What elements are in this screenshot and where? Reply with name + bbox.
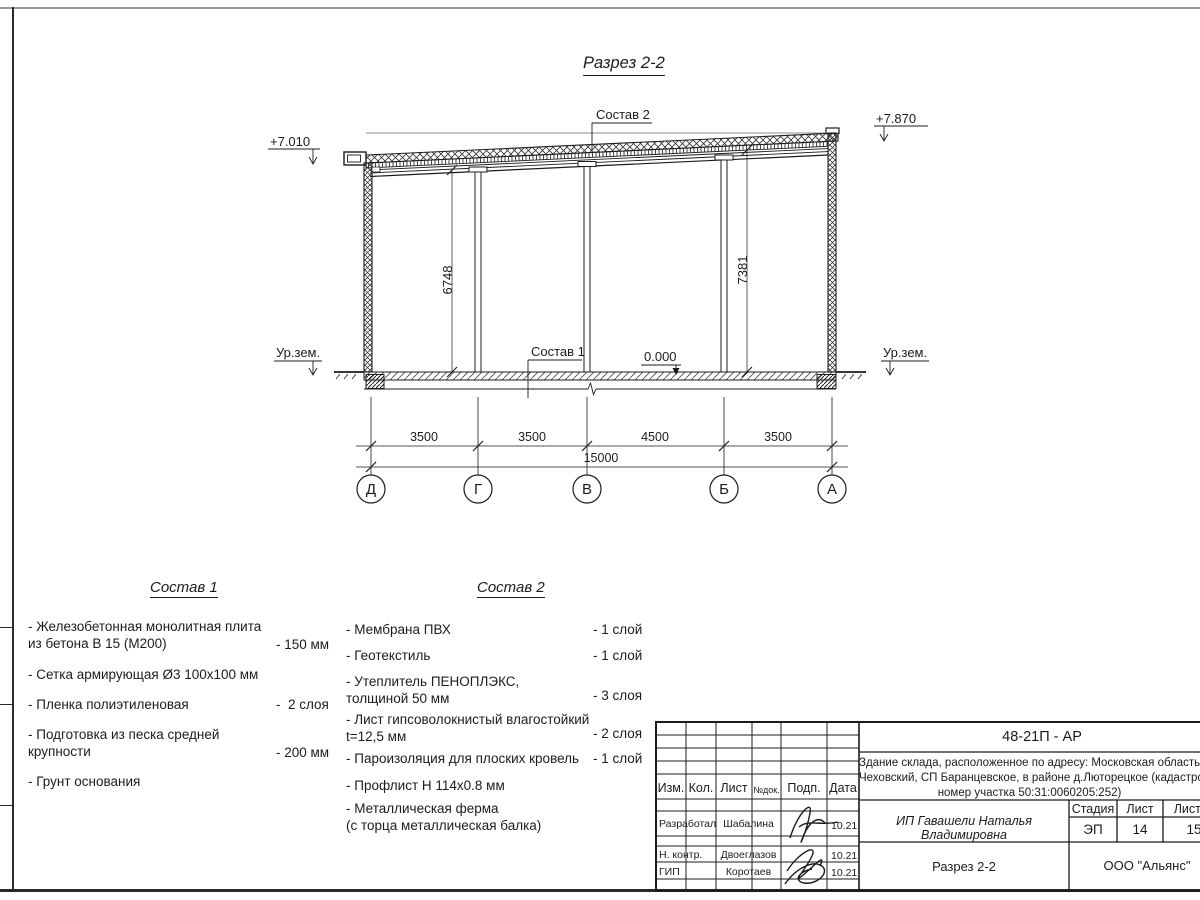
list-item: - Металлическая ферма (с торца металличе… bbox=[346, 800, 591, 834]
list-item: - Пленка полиэтиленовая bbox=[28, 696, 273, 713]
span-dim: 4500 bbox=[641, 430, 669, 444]
stage-label: Стадия bbox=[1069, 802, 1117, 816]
ground-level-label-right: Ур.зем. bbox=[881, 345, 929, 375]
svg-text:Ур.зем.: Ур.зем. bbox=[276, 345, 320, 360]
tb-date: 10.21 bbox=[831, 850, 857, 862]
sheet-label: Лист bbox=[1117, 802, 1163, 816]
list-item-value: - 1 слой bbox=[593, 750, 642, 767]
fold-mark bbox=[0, 627, 13, 628]
columns bbox=[469, 155, 733, 372]
frame-left-line bbox=[12, 7, 14, 891]
sheets-label: Листов bbox=[1163, 802, 1200, 816]
svg-text:Б: Б bbox=[719, 481, 729, 498]
total-dim: 15000 bbox=[584, 451, 619, 465]
foundation-block-right bbox=[817, 375, 836, 389]
section-drawing: 6748 7381 Состав 2 Состав 1 0.000 bbox=[250, 95, 970, 515]
svg-text:В: В bbox=[582, 481, 592, 498]
elevation-mark-right: +7.870 bbox=[874, 111, 928, 141]
composition1-title: Состав 1 bbox=[150, 579, 218, 598]
svg-text:Г: Г bbox=[474, 481, 482, 498]
sheet-number: 14 bbox=[1117, 822, 1163, 837]
list-item: - Геотекстиль bbox=[346, 647, 591, 664]
svg-text:Состав 2: Состав 2 bbox=[596, 107, 650, 122]
roof-assembly bbox=[344, 128, 839, 177]
right-wall bbox=[828, 133, 836, 372]
tb-name: Коротаев bbox=[716, 866, 781, 878]
svg-text:Ур.зем.: Ур.зем. bbox=[883, 345, 927, 360]
floor-slab bbox=[364, 372, 836, 395]
fold-mark bbox=[0, 704, 13, 705]
column-capital bbox=[469, 167, 487, 172]
list-item: - Железобетонная монолитная плита из бет… bbox=[28, 618, 273, 652]
floor-composition-callout: Состав 1 bbox=[528, 344, 585, 398]
tb-col-list: Лист bbox=[716, 781, 752, 795]
fold-mark bbox=[0, 805, 13, 806]
svg-text:0.000: 0.000 bbox=[644, 349, 677, 364]
span-dim: 3500 bbox=[410, 430, 438, 444]
list-item: - Мембрана ПВХ bbox=[346, 621, 591, 638]
span-dim: 3500 bbox=[764, 430, 792, 444]
project-code: 48-21П - АР bbox=[859, 729, 1200, 745]
tb-col-ndok: №док. bbox=[752, 785, 781, 795]
column-shaft bbox=[721, 160, 727, 372]
elevation-mark-left: +7.010 bbox=[268, 134, 320, 164]
company-name: ООО "Альянс" bbox=[1069, 858, 1200, 873]
column-shaft bbox=[584, 167, 590, 373]
list-item-value: - 3 слоя bbox=[593, 687, 642, 704]
address-line: Здание склада, расположенное по адресу: … bbox=[859, 756, 1200, 771]
svg-text:А: А bbox=[827, 481, 837, 498]
composition2-title: Состав 2 bbox=[477, 579, 545, 598]
list-item: - Пароизоляция для плоских кровель bbox=[346, 750, 591, 767]
zero-level-mark: 0.000 bbox=[641, 349, 681, 375]
height-dim-text: 6748 bbox=[440, 266, 455, 295]
svg-text:+7.870: +7.870 bbox=[876, 111, 916, 126]
tb-role: Н. контр. bbox=[659, 849, 702, 861]
height-dimension-right: 7381 bbox=[735, 145, 752, 377]
tb-date: 10.21 bbox=[831, 867, 857, 879]
svg-text:Д: Д bbox=[366, 481, 376, 498]
ground-level-label-left: Ур.зем. bbox=[274, 345, 322, 375]
break-line bbox=[588, 383, 596, 395]
section-view-title: Разрез 2-2 bbox=[583, 54, 665, 76]
address-line: номер участка 50:31:0060205:252) bbox=[859, 786, 1200, 801]
address-line: Чеховский, СП Баранцевское, в районе д.Л… bbox=[859, 771, 1200, 786]
tb-role: ГИП bbox=[659, 866, 680, 878]
column-capital bbox=[715, 155, 733, 160]
height-dimension-left: 6748 bbox=[440, 165, 457, 377]
list-item-value: - 200 мм bbox=[276, 744, 329, 761]
column-shaft bbox=[475, 172, 481, 372]
tb-date: 10.21 bbox=[831, 820, 857, 832]
tb-col-podp: Подп. bbox=[781, 781, 827, 795]
list-item: - Лист гипсоволокнистый влагостойкий t=1… bbox=[346, 711, 591, 745]
stage-value: ЭП bbox=[1069, 822, 1117, 837]
roof-left-end-cap-inner bbox=[348, 155, 361, 162]
list-item: - Сетка армирующая Ø3 100х100 мм bbox=[28, 666, 288, 683]
tb-col-kol: Кол. bbox=[686, 781, 716, 795]
client-name: ИП Гавашели Наталья Владимировна bbox=[859, 814, 1069, 842]
ground-line-left bbox=[334, 372, 364, 379]
column-capital bbox=[578, 162, 596, 167]
drawing-sheet: Разрез 2-2 bbox=[0, 0, 1200, 900]
svg-text:+7.010: +7.010 bbox=[270, 134, 310, 149]
list-item: - Утеплитель ПЕНОПЛЭКС, толщиной 50 мм bbox=[346, 673, 591, 707]
ground-line-right bbox=[836, 372, 866, 379]
list-item: - Грунт основания bbox=[28, 773, 273, 790]
sheets-total: 15 bbox=[1163, 822, 1200, 837]
tb-col-data: Дата bbox=[827, 781, 859, 795]
svg-text:Состав 1: Состав 1 bbox=[531, 344, 585, 359]
list-item-value: - 2 слоя bbox=[593, 725, 642, 742]
height-dim-text: 7381 bbox=[735, 256, 750, 285]
left-wall bbox=[364, 163, 372, 372]
tb-name: Двоеглазов bbox=[716, 849, 781, 861]
tb-name: Шабалина bbox=[716, 818, 781, 830]
list-item-value: - 1 слой bbox=[593, 621, 642, 638]
list-item: - Подготовка из песка средней крупности bbox=[28, 726, 273, 760]
list-item: - Профлист Н 114х0.8 мм bbox=[346, 777, 591, 794]
tb-col-izm: Изм. bbox=[656, 781, 686, 795]
list-item-value: - 2 слоя bbox=[276, 696, 329, 713]
list-item-value: - 1 слой bbox=[593, 647, 642, 664]
project-description: Здание склада, расположенное по адресу: … bbox=[859, 756, 1200, 801]
axis-bubbles bbox=[357, 475, 846, 503]
left-wall-capital bbox=[372, 167, 380, 172]
tb-role: Разработал bbox=[659, 818, 716, 830]
dimension-texts: 3500 3500 4500 3500 15000 bbox=[410, 430, 792, 465]
foundation-block-left bbox=[366, 375, 384, 389]
view-name: Разрез 2-2 bbox=[859, 859, 1069, 874]
span-dim: 3500 bbox=[518, 430, 546, 444]
list-item-value: - 150 мм bbox=[276, 636, 329, 653]
frame-top-line bbox=[0, 7, 1200, 9]
